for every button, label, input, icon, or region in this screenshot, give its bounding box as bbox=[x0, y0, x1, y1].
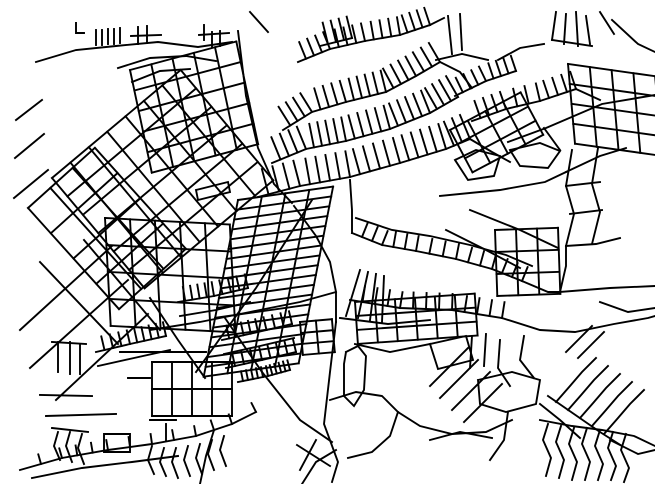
street-map-figure bbox=[0, 0, 655, 484]
street-map bbox=[0, 0, 655, 484]
